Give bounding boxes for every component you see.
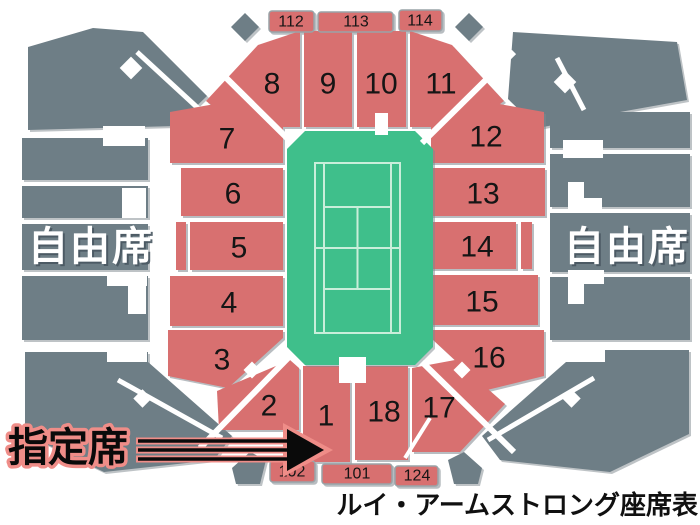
free-seating-label-left: 自由席 [28, 225, 154, 269]
gate-114-label: 114 [407, 13, 433, 30]
section-17-label: 17 [422, 392, 455, 425]
section-6-label: 6 [225, 178, 242, 211]
walkway-notch [122, 188, 146, 218]
walkway-notch [568, 198, 602, 212]
section-16-label: 16 [472, 342, 505, 375]
walkway-notch [107, 344, 147, 362]
gate-124-label: 124 [404, 468, 431, 485]
tennis-court [287, 131, 433, 365]
section-9-label: 9 [320, 68, 337, 101]
page-title: ルイ・アームストロング座席表 [336, 490, 699, 520]
stand-top-center-left [231, 13, 259, 41]
gate-112-label: 112 [278, 14, 304, 31]
section-14-label: 14 [460, 231, 493, 264]
section-14-sliver[interactable] [521, 222, 532, 269]
section-3-label: 3 [214, 344, 231, 377]
gate-101-label: 101 [344, 466, 371, 483]
section-12-label: 12 [469, 121, 502, 154]
walkway-notch [128, 272, 146, 314]
section-10-notch [375, 113, 388, 135]
walkway-notch [563, 140, 603, 158]
stadium-seating-map: 1 2 3 4 5 6 7 8 9 10 11 12 13 14 15 16 1… [0, 0, 700, 525]
stand-top-center-right [455, 13, 483, 41]
free-seating-label-right: 自由席 [564, 225, 690, 269]
section-18-notch [339, 357, 366, 383]
section-11-label: 11 [425, 68, 456, 101]
reserved-seating-label: 指定席 [8, 426, 128, 470]
section-1-label: 1 [318, 400, 335, 433]
section-8-label: 8 [264, 68, 281, 101]
section-10-label: 10 [364, 68, 397, 101]
section-5-sliver[interactable] [176, 222, 186, 270]
walkway-notch [103, 126, 145, 146]
section-2-label: 2 [261, 390, 278, 423]
section-7-label: 7 [219, 123, 236, 156]
section-15-label: 15 [465, 286, 498, 319]
section-5[interactable] [176, 222, 283, 270]
stand-bottom-center-right [448, 452, 482, 484]
section-5-label: 5 [231, 232, 248, 265]
gate-113-label: 113 [343, 14, 369, 31]
section-4-label: 4 [221, 287, 238, 320]
section-18-label: 18 [367, 396, 400, 429]
section-13-label: 13 [466, 178, 499, 211]
walkway-notch [565, 344, 605, 362]
walkway-notch [568, 270, 584, 304]
